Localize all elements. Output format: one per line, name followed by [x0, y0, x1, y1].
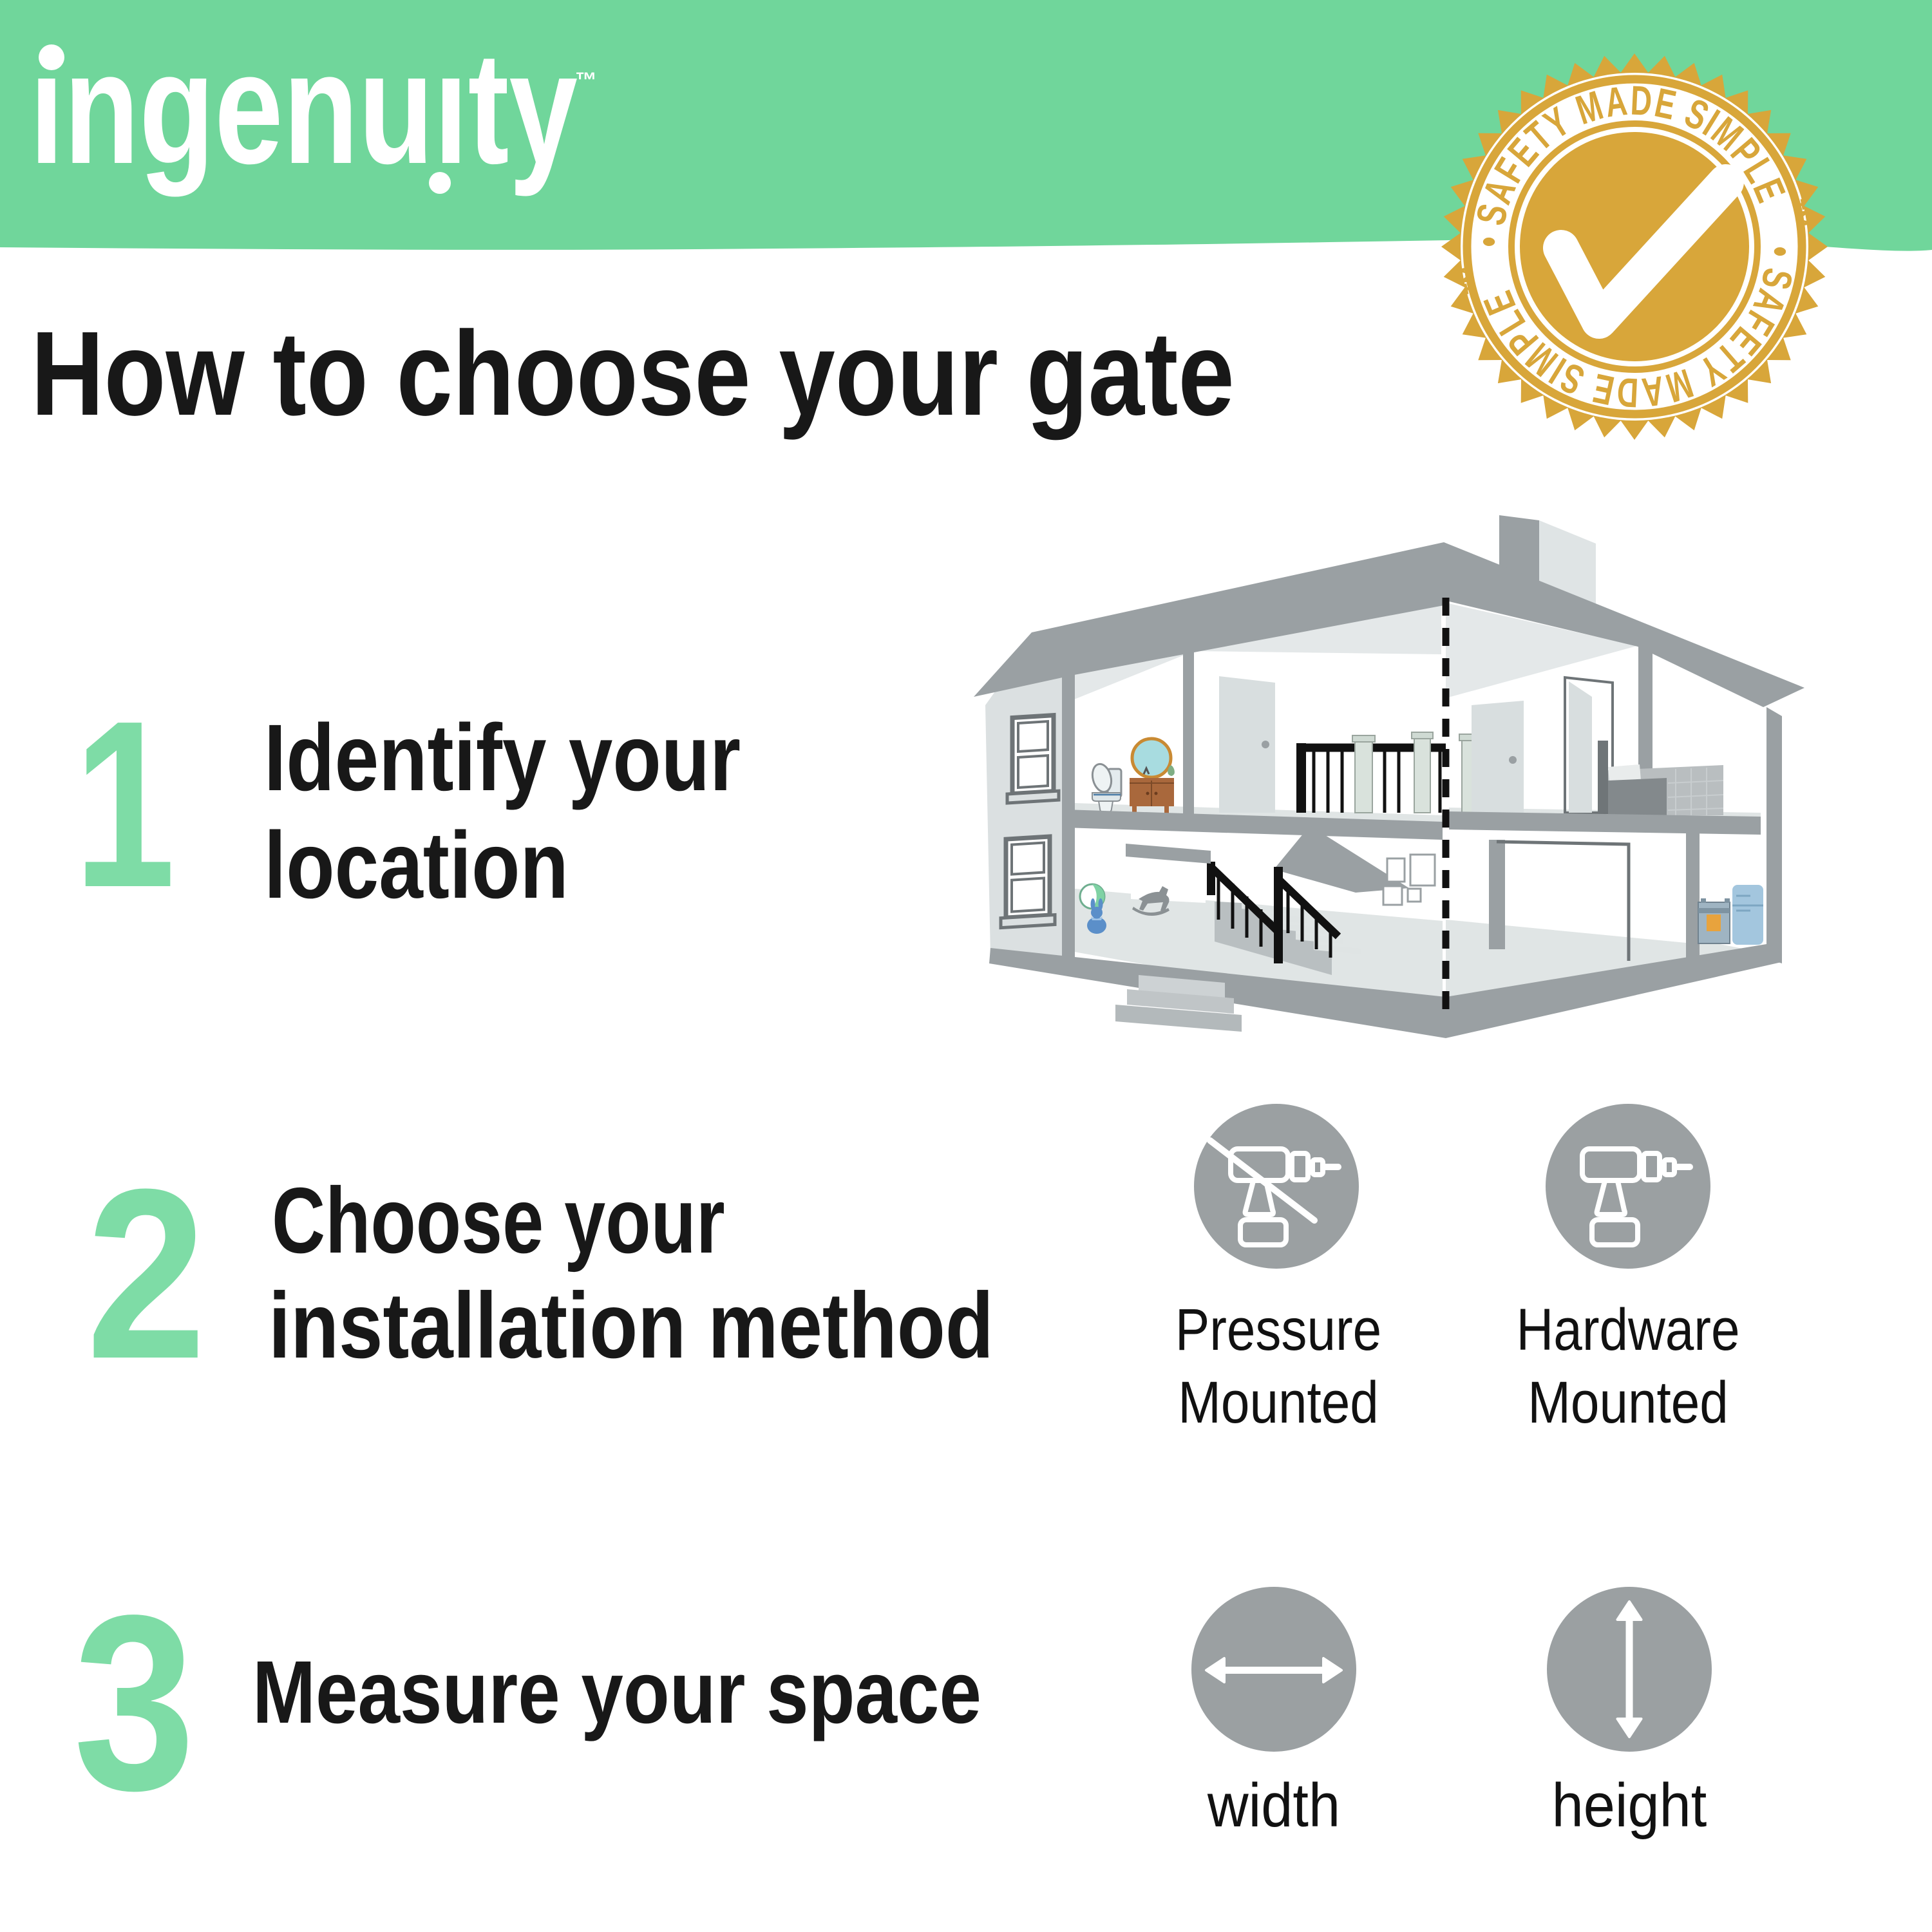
svg-text:™: ™ [1774, 196, 1815, 234]
svg-text:•: • [1757, 245, 1804, 257]
svg-text:D: D [1629, 77, 1653, 124]
svg-text:•: • [1465, 236, 1511, 247]
svg-text:™: ™ [1454, 259, 1496, 298]
svg-text:D: D [1616, 369, 1639, 416]
